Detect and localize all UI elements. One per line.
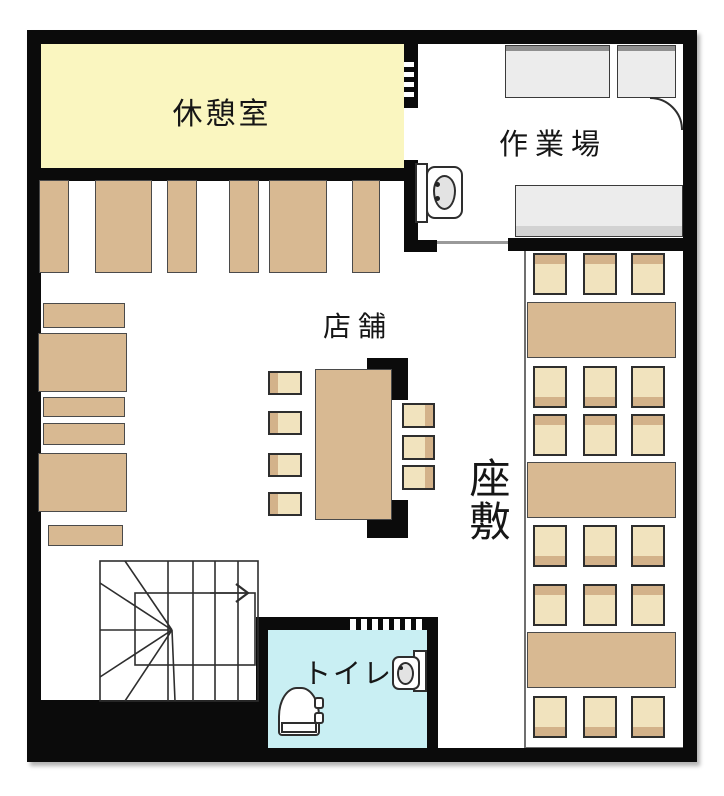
chair <box>631 366 665 408</box>
toilet-door-hatch-icon <box>345 619 425 630</box>
wall-center-stub <box>404 240 437 252</box>
chair <box>631 584 665 626</box>
chair <box>402 465 435 490</box>
locker <box>39 180 69 273</box>
passage-line <box>437 241 508 244</box>
door-swing-icon <box>640 90 690 140</box>
chair <box>533 525 567 567</box>
stairs-icon <box>98 558 262 706</box>
chair <box>268 453 302 477</box>
chair <box>631 414 665 456</box>
chair <box>583 696 617 738</box>
toilet-flush-knob <box>314 712 324 724</box>
toilet-sink-faucet-dot <box>399 666 403 670</box>
floorplan-canvas: 休憩室 作業場 店舗 座敷 トイレ <box>0 0 724 796</box>
locker <box>95 180 152 273</box>
chair <box>533 696 567 738</box>
kitchen-sink-faucet-dot <box>435 182 440 187</box>
wall-left <box>27 30 41 762</box>
chair <box>402 435 435 460</box>
locker <box>229 180 259 273</box>
breakroom-label: 休憩室 <box>117 89 327 133</box>
chair <box>631 696 665 738</box>
toilet-flush-knob <box>314 697 324 709</box>
locker <box>167 180 197 273</box>
locker <box>269 180 327 273</box>
tatami-table <box>527 302 676 358</box>
chair <box>533 414 567 456</box>
workspace-label: 作業場 <box>478 121 628 163</box>
shelf <box>43 397 125 417</box>
chair <box>533 366 567 408</box>
chair <box>583 584 617 626</box>
chair <box>533 253 567 295</box>
chair <box>402 403 435 428</box>
kitchen-sink-faucet-dot <box>435 196 440 201</box>
chair <box>583 414 617 456</box>
chair <box>583 253 617 295</box>
shop-label: 店舗 <box>298 305 418 345</box>
locker <box>352 180 380 273</box>
shelf <box>43 303 125 328</box>
workspace-counter <box>505 45 610 98</box>
chair <box>631 253 665 295</box>
toilet-base <box>281 722 317 733</box>
under-stairs-block <box>27 700 258 762</box>
tatami-table <box>527 462 676 518</box>
wall-workspace-bottom <box>508 238 688 251</box>
chair <box>268 411 302 435</box>
shelf <box>43 423 125 445</box>
toilet-label: トイレ <box>288 652 408 692</box>
shelf <box>48 525 123 546</box>
shelf <box>38 333 127 392</box>
chair <box>583 525 617 567</box>
chair <box>533 584 567 626</box>
chair <box>268 371 302 395</box>
chair <box>583 366 617 408</box>
wall-top <box>27 30 697 44</box>
shelf <box>38 453 127 512</box>
shop-table <box>315 369 392 520</box>
breakroom-wall-hatch-icon <box>404 57 414 102</box>
workspace-counter <box>515 185 683 237</box>
tatami-table <box>527 632 676 688</box>
chair <box>631 525 665 567</box>
chair <box>268 492 302 516</box>
wall-toilet-right <box>427 617 438 762</box>
tatami-label: 座敷 <box>466 452 516 548</box>
